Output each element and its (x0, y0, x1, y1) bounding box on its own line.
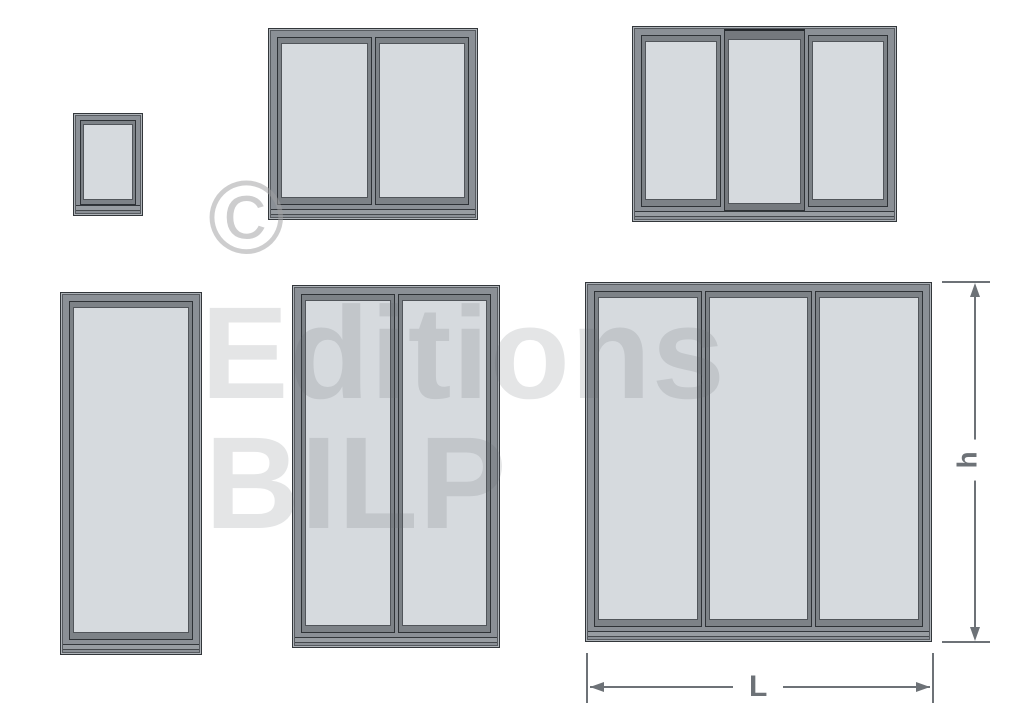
window-pane (375, 37, 470, 205)
glass-panel (819, 297, 919, 620)
arrow-down-icon (970, 627, 980, 641)
arrow-up-icon (970, 283, 980, 297)
glass-panel (728, 39, 800, 204)
window-pane (69, 301, 193, 640)
window-pane (277, 37, 372, 205)
window-pane (815, 291, 923, 627)
glass-panel (402, 300, 488, 626)
glass-panel (83, 124, 133, 200)
window-triple-small (632, 26, 897, 222)
diagram-canvas: h L © Editions BILP (0, 0, 1024, 724)
glass-panel (598, 297, 698, 620)
window-double-small (268, 28, 478, 220)
window-pane (705, 291, 813, 627)
window-double-tall (292, 285, 500, 648)
window-pane (80, 120, 136, 205)
window-pane (594, 291, 702, 627)
window-triple-large (585, 282, 932, 642)
dimension-tick (942, 281, 990, 283)
glass-panel (73, 307, 189, 633)
window-pane-front (724, 29, 804, 211)
window-pane (641, 35, 721, 207)
window-pane (398, 294, 492, 633)
window-pane (301, 294, 395, 633)
glass-panel (305, 300, 391, 626)
width-dimension-label: L (733, 671, 783, 703)
window-single-small (73, 113, 143, 216)
window-single-tall (60, 292, 202, 655)
glass-panel (812, 41, 884, 200)
glass-panel (709, 297, 809, 620)
dimension-tick (942, 641, 990, 643)
glass-panel (379, 43, 466, 198)
arrow-left-icon (590, 682, 604, 692)
window-pane (808, 35, 888, 207)
glass-panel (645, 41, 717, 200)
dimension-tick (586, 653, 588, 703)
height-dimension-label: h (952, 439, 984, 480)
glass-panel (281, 43, 368, 198)
arrow-right-icon (916, 682, 930, 692)
dimension-tick (932, 653, 934, 703)
